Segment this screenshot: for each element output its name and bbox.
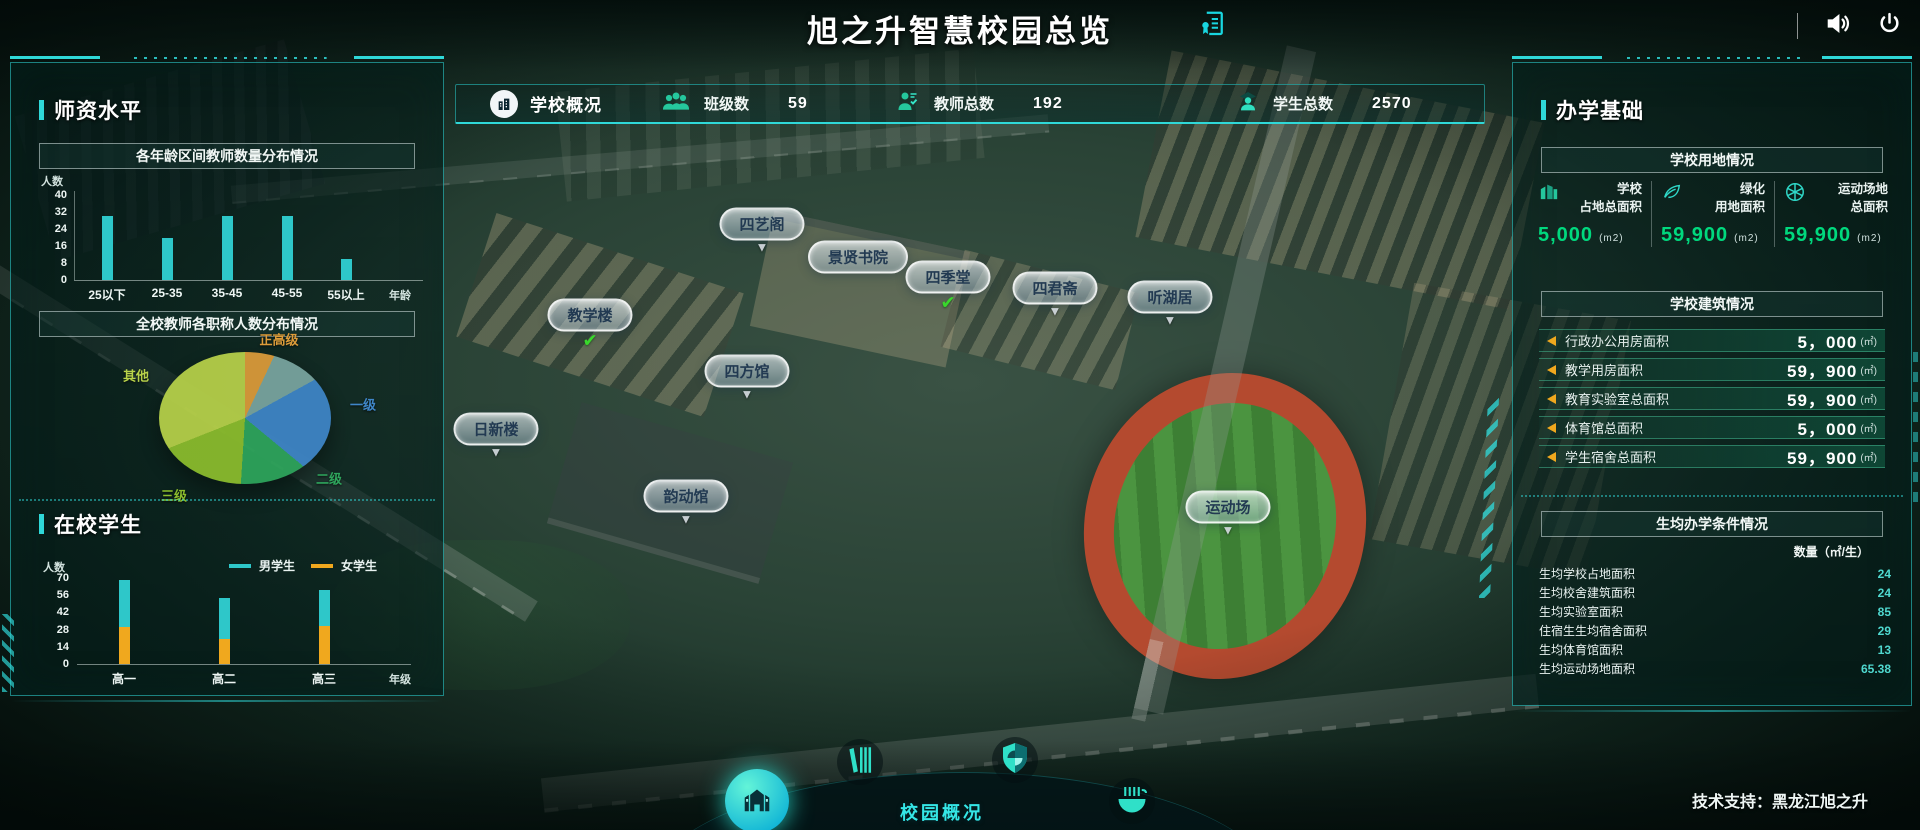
nav-shield-icon[interactable] (992, 737, 1038, 783)
land-card-0: 学校占地总面积 5,000(m2) (1529, 181, 1651, 247)
building-label-四季堂[interactable]: 四季堂✔ (905, 261, 990, 294)
land-section-title: 学校用地情况 (1541, 147, 1883, 173)
female-bar (119, 627, 130, 664)
row-value: 5，000 (1798, 328, 1858, 353)
row-label: 学生宿舍总面积 (1565, 447, 1656, 466)
per-student-unit-label: 数量（㎡/生） (1794, 543, 1869, 560)
building-label-韵动馆[interactable]: 韵动馆▼ (643, 480, 728, 513)
building-row: 教育实验室总面积 59，900 (㎡) (1539, 387, 1885, 410)
ps-label: 住宿生生均宿舍面积 (1539, 622, 1682, 639)
building-row: 行政办公用房面积 5，000 (㎡) (1539, 329, 1885, 352)
row-unit: (㎡) (1860, 362, 1877, 377)
ps-label: 生均运动场地面积 (1539, 660, 1675, 677)
stat-item-2: 学生总数 2570 (1236, 85, 1412, 122)
map-pin-icon: ▼ (756, 241, 769, 254)
row-triangle-icon (1547, 452, 1556, 462)
map-pin-icon: ▼ (1049, 305, 1062, 318)
teachers-icon (894, 89, 921, 118)
age-bar (102, 216, 113, 280)
map-pin-icon: ▼ (680, 513, 693, 526)
row-value: 5，000 (1798, 415, 1858, 440)
pie-label: 正高级 (259, 330, 298, 349)
canteen-icon (1114, 784, 1150, 819)
map-pin-icon: ▼ (1164, 314, 1177, 327)
row-unit: (㎡) (1860, 333, 1877, 348)
active-nav-label: 校园概况 (900, 799, 984, 825)
page-title: 旭之升智慧校园总览 (807, 6, 1113, 51)
per-student-row: 生均校舍建筑面积 24 (1539, 586, 1891, 599)
row-label: 教学用房面积 (1565, 360, 1643, 379)
per-student-row: 生均学校占地面积 24 (1539, 567, 1891, 580)
land-stats: 学校占地总面积 5,000(m2) 绿化用地面积 59,900(m2) 运动场地… (1529, 181, 1897, 247)
building-section-title: 学校建筑情况 (1541, 291, 1883, 317)
building-label-运动场[interactable]: 运动场▼ (1185, 491, 1270, 524)
per-student-row: 生均体育馆面积 13 (1539, 643, 1891, 656)
land-label: 运动场地总面积 (1838, 181, 1888, 216)
age-bar (162, 238, 173, 281)
ps-value: 24 (1878, 586, 1891, 600)
land-label: 学校占地总面积 (1579, 181, 1642, 216)
nav-canteen-icon[interactable] (1109, 778, 1155, 824)
per-student-row: 生均实验室面积 85 (1539, 605, 1891, 618)
age-chart-title: 各年龄区间教师数量分布情况 (39, 143, 415, 169)
greenery-icon (1661, 181, 1683, 206)
panel-divider (1521, 495, 1903, 497)
per-student-row: 住宿生生均宿舍面积 29 (1539, 624, 1891, 637)
age-bar (341, 259, 352, 280)
ps-value: 65.38 (1861, 662, 1891, 676)
ps-label: 生均体育馆面积 (1539, 641, 1682, 658)
per-student-section-title: 生均办学条件情况 (1541, 511, 1883, 537)
section-title-students: 在校学生 (39, 509, 142, 539)
panel-divider (19, 499, 435, 501)
smart-campus-dashboard: 四艺阁▼景贤书院四季堂✔四君斋▼听湖居▼教学楼✔四方馆▼日新楼▼韵动馆▼运动场▼… (0, 0, 1920, 830)
stat-value: 2570 (1372, 95, 1412, 113)
section-title-teachers: 师资水平 (39, 95, 142, 125)
row-triangle-icon (1547, 394, 1556, 404)
female-bar (319, 626, 330, 664)
row-unit: (㎡) (1860, 449, 1877, 464)
stadium-icon (1784, 181, 1806, 208)
pie-label: 二级 (316, 469, 342, 488)
building-row: 学生宿舍总面积 59，900 (㎡) (1539, 445, 1885, 468)
row-unit: (㎡) (1860, 391, 1877, 406)
female-bar (219, 639, 230, 664)
header-divider (1797, 13, 1798, 39)
row-unit: (㎡) (1860, 420, 1877, 435)
row-value: 59，900 (1787, 444, 1857, 469)
building-area-rows: 行政办公用房面积 5，000 (㎡) 教学用房面积 59，900 (㎡) 教育实… (1539, 329, 1885, 474)
row-label: 行政办公用房面积 (1565, 331, 1669, 350)
land-card-2: 运动场地总面积 59,900(m2) (1774, 181, 1897, 247)
stat-label: 学生总数 (1273, 93, 1333, 114)
speaker-icon[interactable] (1824, 10, 1851, 42)
teacher-panel: 师资水平 各年龄区间教师数量分布情况 人数403224168025以下25-35… (10, 62, 444, 696)
certificate-icon[interactable] (1198, 9, 1228, 44)
nav-library-icon[interactable] (837, 739, 883, 785)
male-bar (219, 598, 230, 640)
pie-label: 其他 (123, 366, 149, 385)
school-icon (740, 784, 774, 819)
row-value: 59，900 (1787, 357, 1857, 382)
ps-label: 生均校舍建筑面积 (1539, 584, 1682, 601)
row-label: 教育实验室总面积 (1565, 389, 1669, 408)
pie-graphic (159, 352, 331, 484)
hud-hatch-decoration (2, 614, 14, 692)
power-icon[interactable] (1877, 11, 1902, 41)
building-icon (1538, 181, 1560, 206)
map-pin-icon: ▼ (741, 388, 754, 401)
ps-label: 生均学校占地面积 (1539, 565, 1682, 582)
age-bar (222, 216, 233, 280)
building-label-四艺阁[interactable]: 四艺阁▼ (719, 208, 804, 241)
building-label-听湖居[interactable]: 听湖居▼ (1127, 281, 1212, 314)
foundation-panel: 办学基础 学校用地情况 学校占地总面积 5,000(m2) 绿化用地面积 59,… (1512, 62, 1912, 706)
students-icon (1236, 89, 1260, 118)
per-student-bars: 生均学校占地面积 24生均校舍建筑面积 24生均实验室面积 85住宿生生均宿舍面… (1539, 567, 1891, 681)
pie-label: 一级 (350, 395, 376, 414)
age-bar (282, 216, 293, 280)
legend-male: 男学生 (229, 557, 295, 574)
stat-label: 班级数 (704, 93, 749, 114)
classes-icon (661, 90, 691, 117)
per-student-row: 生均运动场地面积 65.38 (1539, 662, 1891, 675)
building-row: 教学用房面积 59，900 (㎡) (1539, 358, 1885, 381)
shield-icon (997, 740, 1033, 781)
land-card-1: 绿化用地面积 59,900(m2) (1651, 181, 1774, 247)
school-stats-bar: 学校概况 班级数 59 教师总数 192 学生总数 2570 (455, 84, 1485, 124)
land-value: 5,000(m2) (1538, 224, 1642, 247)
student-stacked-chart: 人数70564228140高一高二高三年级男学生女学生 (11, 551, 443, 686)
map-pin-icon: ▼ (1222, 524, 1235, 537)
age-bar-chart: 人数403224168025以下25-3535-4545-5555以上年龄 (11, 171, 443, 301)
stat-value: 59 (788, 95, 808, 113)
nav-school-icon[interactable] (725, 769, 789, 830)
building-label-四方馆[interactable]: 四方馆▼ (704, 355, 789, 388)
land-label: 绿化用地面积 (1715, 181, 1765, 216)
building-label-景贤书院[interactable]: 景贤书院 (808, 241, 908, 274)
tech-support-text: 技术支持：黑龙江旭之升 (1692, 788, 1868, 812)
stat-label: 教师总数 (934, 93, 994, 114)
building-row: 体育馆总面积 5，000 (㎡) (1539, 416, 1885, 439)
library-icon (843, 743, 877, 782)
building-label-日新楼[interactable]: 日新楼▼ (453, 413, 538, 446)
row-triangle-icon (1547, 423, 1556, 433)
land-value: 59,900(m2) (1784, 224, 1888, 247)
legend-female: 女学生 (311, 557, 377, 574)
land-value: 59,900(m2) (1661, 224, 1765, 247)
stat-item-1: 教师总数 192 (894, 85, 1063, 122)
stat-item-0: 班级数 59 (661, 85, 808, 122)
male-bar (319, 590, 330, 626)
ps-value: 29 (1878, 624, 1891, 638)
row-value: 59，900 (1787, 386, 1857, 411)
ps-value: 13 (1878, 643, 1891, 657)
row-triangle-icon (1547, 365, 1556, 375)
row-label: 体育馆总面积 (1565, 418, 1643, 437)
ps-label: 生均实验室面积 (1539, 603, 1682, 620)
stats-bar-title: 学校概况 (530, 91, 602, 116)
rank-pie-chart: 正高级一级二级三级其他 (11, 331, 443, 521)
ps-value: 85 (1878, 605, 1891, 619)
checkmark-icon: ✔ (940, 294, 955, 312)
pie-label: 三级 (161, 486, 187, 505)
map-pin-icon: ▼ (490, 446, 503, 459)
building-label-教学楼[interactable]: 教学楼✔ (547, 299, 632, 332)
male-bar (119, 580, 130, 627)
school-overview-icon (490, 90, 518, 118)
ps-value: 24 (1878, 567, 1891, 581)
hud-edge-dashes (1913, 352, 1918, 512)
stat-value: 192 (1033, 95, 1063, 113)
building-label-四君斋[interactable]: 四君斋▼ (1012, 272, 1097, 305)
section-title-foundation: 办学基础 (1541, 95, 1644, 125)
row-triangle-icon (1547, 336, 1556, 346)
checkmark-icon: ✔ (582, 332, 597, 350)
